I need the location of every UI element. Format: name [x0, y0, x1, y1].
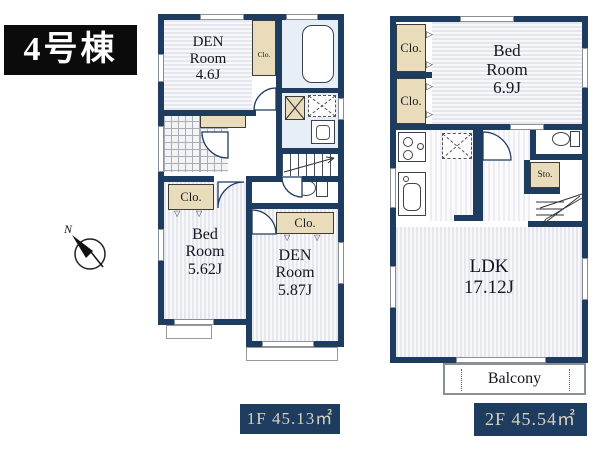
folding-door-icon: ▽ [174, 210, 180, 218]
folding-door-icon: ▽ [284, 234, 290, 242]
label-bed-6-9: BedRoom6.9J [432, 40, 582, 100]
compass-icon: N [58, 218, 120, 280]
door-swing-arc [483, 132, 511, 160]
stairs-arrowhead [326, 157, 334, 158]
door-swing-arc [218, 182, 244, 208]
folding-door-icon: ▽ [196, 210, 202, 218]
door-swing-arc [202, 132, 228, 158]
compass-north-label: N [63, 222, 73, 236]
building-badge: 4号棟 [4, 25, 137, 75]
door-swing-arc [254, 88, 276, 110]
area-badge-2f: 2F 45.54㎡ [474, 403, 587, 436]
plan-2f: Balcony Clo. Clo. BedRoom6.9J Sto. LDK17… [390, 16, 590, 400]
label-closet-den: Clo. [276, 212, 334, 234]
floorplan-page: 4号棟 N [0, 0, 600, 450]
area-badge-1f: 1F 45.13㎡ [240, 404, 340, 434]
label-closet-hall: Clo. [252, 48, 276, 60]
door-swing-arc [282, 177, 302, 197]
stairs-fan [540, 194, 582, 208]
plan-1f: DENRoom4.6J Clo. Clo. BedRoom5.62J Clo. … [158, 14, 344, 364]
label-storage: Sto. [530, 162, 560, 188]
stairs-direction-line [284, 158, 334, 172]
folding-door-icon: ▷ [426, 110, 433, 119]
folding-door-icon: ▷ [426, 30, 433, 39]
folding-door-icon: ▷ [426, 60, 433, 69]
label-bed-5-62: BedRoom5.62J [164, 224, 246, 280]
folding-door-icon: ▷ [426, 82, 433, 91]
label-closet-upper: Clo. [396, 24, 426, 72]
label-den-4-6: DENRoom4.6J [164, 30, 252, 88]
label-den-5-87: DENRoom5.87J [252, 244, 338, 302]
stairs-direction-line [542, 196, 580, 225]
label-closet-lower: Clo. [396, 78, 426, 124]
door-swing-arc [252, 210, 276, 234]
label-ldk: LDK17.12J [396, 254, 582, 302]
folding-door-icon: ▽ [314, 234, 320, 242]
label-closet-bedroom: Clo. [168, 184, 214, 210]
